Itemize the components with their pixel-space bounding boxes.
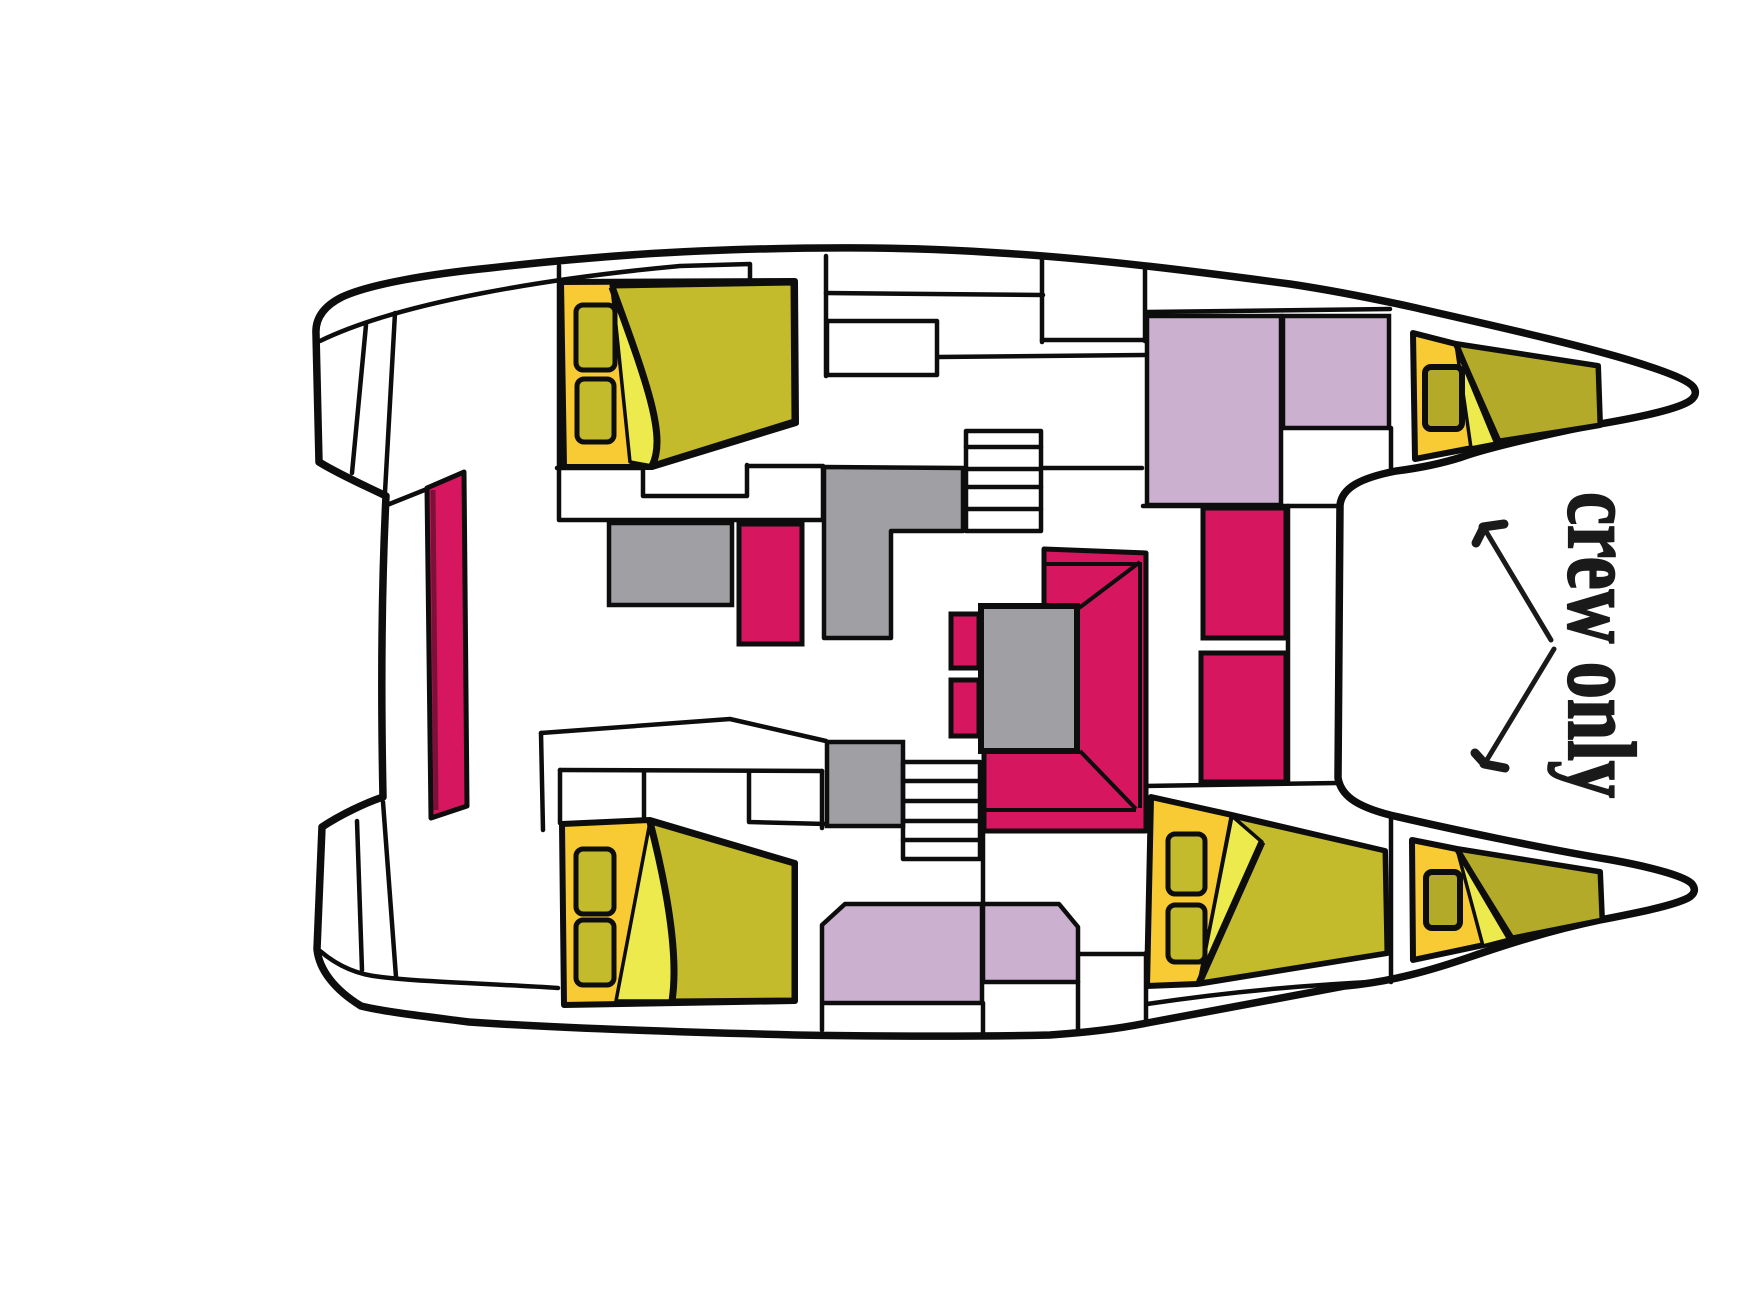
svg-text:crew only: crew only bbox=[1548, 492, 1655, 798]
